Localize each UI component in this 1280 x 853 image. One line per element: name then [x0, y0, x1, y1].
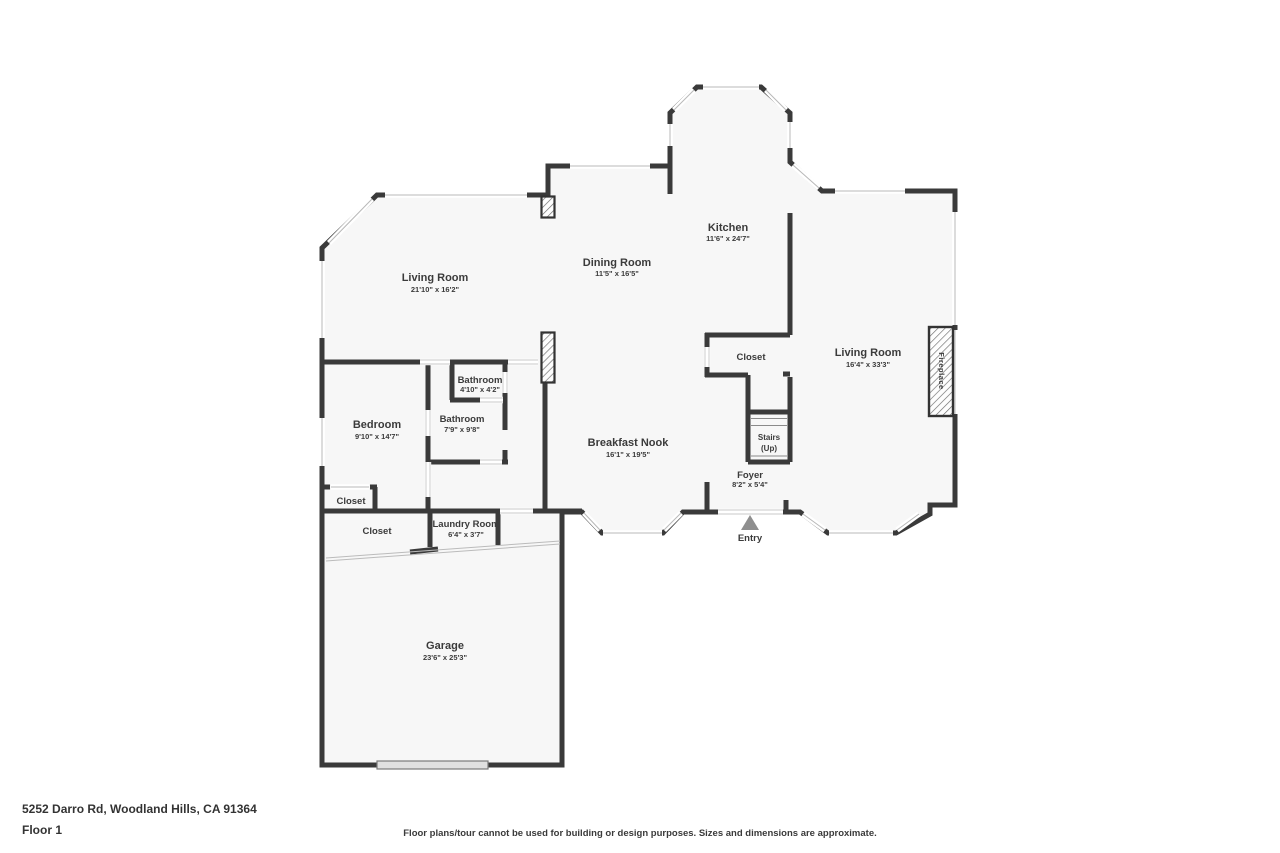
fireplace: Fireplace [929, 327, 953, 416]
garage-door [377, 761, 488, 769]
dims-breakfast-nook: 16'1" x 19'5" [606, 450, 650, 459]
dims-foyer: 8'2" x 5'4" [732, 480, 768, 489]
dims-bathroom-lower: 7'9" x 9'8" [444, 425, 480, 434]
label-closet-bedroom: Closet [336, 496, 366, 507]
label-entry: Entry [738, 533, 763, 544]
label-garage: Garage [426, 640, 464, 652]
dims-bedroom: 9'10" x 14'7" [355, 432, 399, 441]
chimney-column-top [542, 197, 555, 218]
label-bedroom: Bedroom [353, 419, 402, 431]
floor-plan-page: Fireplace Living Room 21'10" x 16'2" Din… [0, 0, 1280, 853]
label-stairs: Stairs [758, 433, 781, 442]
label-stairs-up: (Up) [761, 444, 777, 453]
property-address: 5252 Darro Rd, Woodland Hills, CA 91364 [22, 802, 257, 816]
chimney-column-mid [542, 333, 555, 383]
dims-kitchen: 11'6" x 24'7" [706, 234, 750, 243]
label-bathroom-lower: Bathroom [440, 414, 485, 425]
dims-bathroom-upper: 4'10" x 4'2" [460, 385, 500, 394]
dims-living-room-right: 16'4" x 33'3" [846, 360, 890, 369]
entry-arrow-icon [741, 515, 759, 530]
label-laundry-room: Laundry Room [432, 519, 499, 530]
disclaimer-text: Floor plans/tour cannot be used for buil… [0, 828, 1280, 839]
label-breakfast-nook: Breakfast Nook [588, 437, 670, 449]
dims-garage: 23'6" x 25'3" [423, 653, 467, 662]
label-closet-hall: Closet [362, 526, 392, 537]
floor-plan-canvas: Fireplace Living Room 21'10" x 16'2" Din… [0, 0, 1280, 853]
dims-living-room-left: 21'10" x 16'2" [411, 285, 460, 294]
dims-laundry-room: 6'4" x 3'7" [448, 530, 484, 539]
label-dining-room: Dining Room [583, 257, 652, 269]
label-living-room-left: Living Room [402, 272, 469, 284]
label-living-room-right: Living Room [835, 347, 902, 359]
label-kitchen: Kitchen [708, 222, 749, 234]
dims-dining-room: 11'5" x 16'5" [595, 269, 639, 278]
fireplace-label: Fireplace [937, 352, 946, 389]
label-closet-foyer: Closet [736, 352, 766, 363]
